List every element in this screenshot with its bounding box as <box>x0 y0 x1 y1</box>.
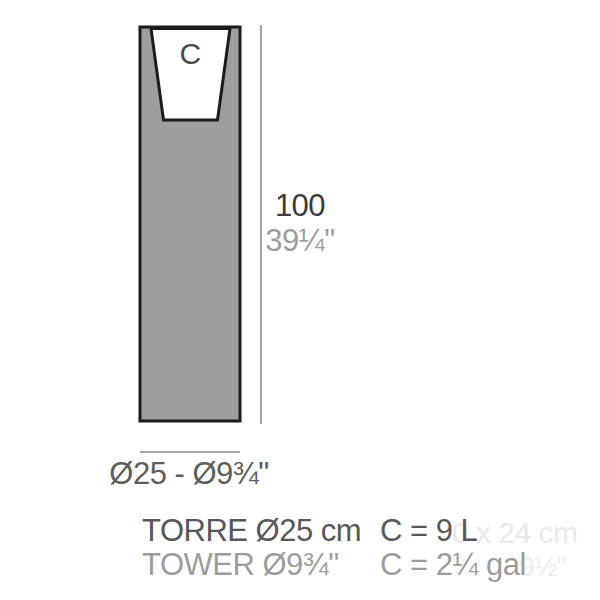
dimension-diagram-page: C 100 39¼" Ø25 - Ø9¾" 0 x 24 cm 9½" TORR… <box>0 0 600 600</box>
product-name-imperial: TOWER Ø9¾" <box>142 549 339 580</box>
cavity-capacity-label: C <box>176 39 204 69</box>
capacity-metric: C = 9 L <box>380 515 477 546</box>
diameter-label: Ø25 - Ø9¾" <box>89 458 289 489</box>
product-name-metric: TORRE Ø25 cm <box>142 515 361 546</box>
diameter-dimension-line <box>140 451 240 453</box>
height-label-inches: 39¼" <box>258 225 342 256</box>
height-label-cm: 100 <box>258 190 342 221</box>
capacity-imperial: C = 2¼ gal <box>380 549 526 580</box>
planter-diagram <box>0 0 600 600</box>
watermark-text-line2: 9½" <box>519 553 566 581</box>
